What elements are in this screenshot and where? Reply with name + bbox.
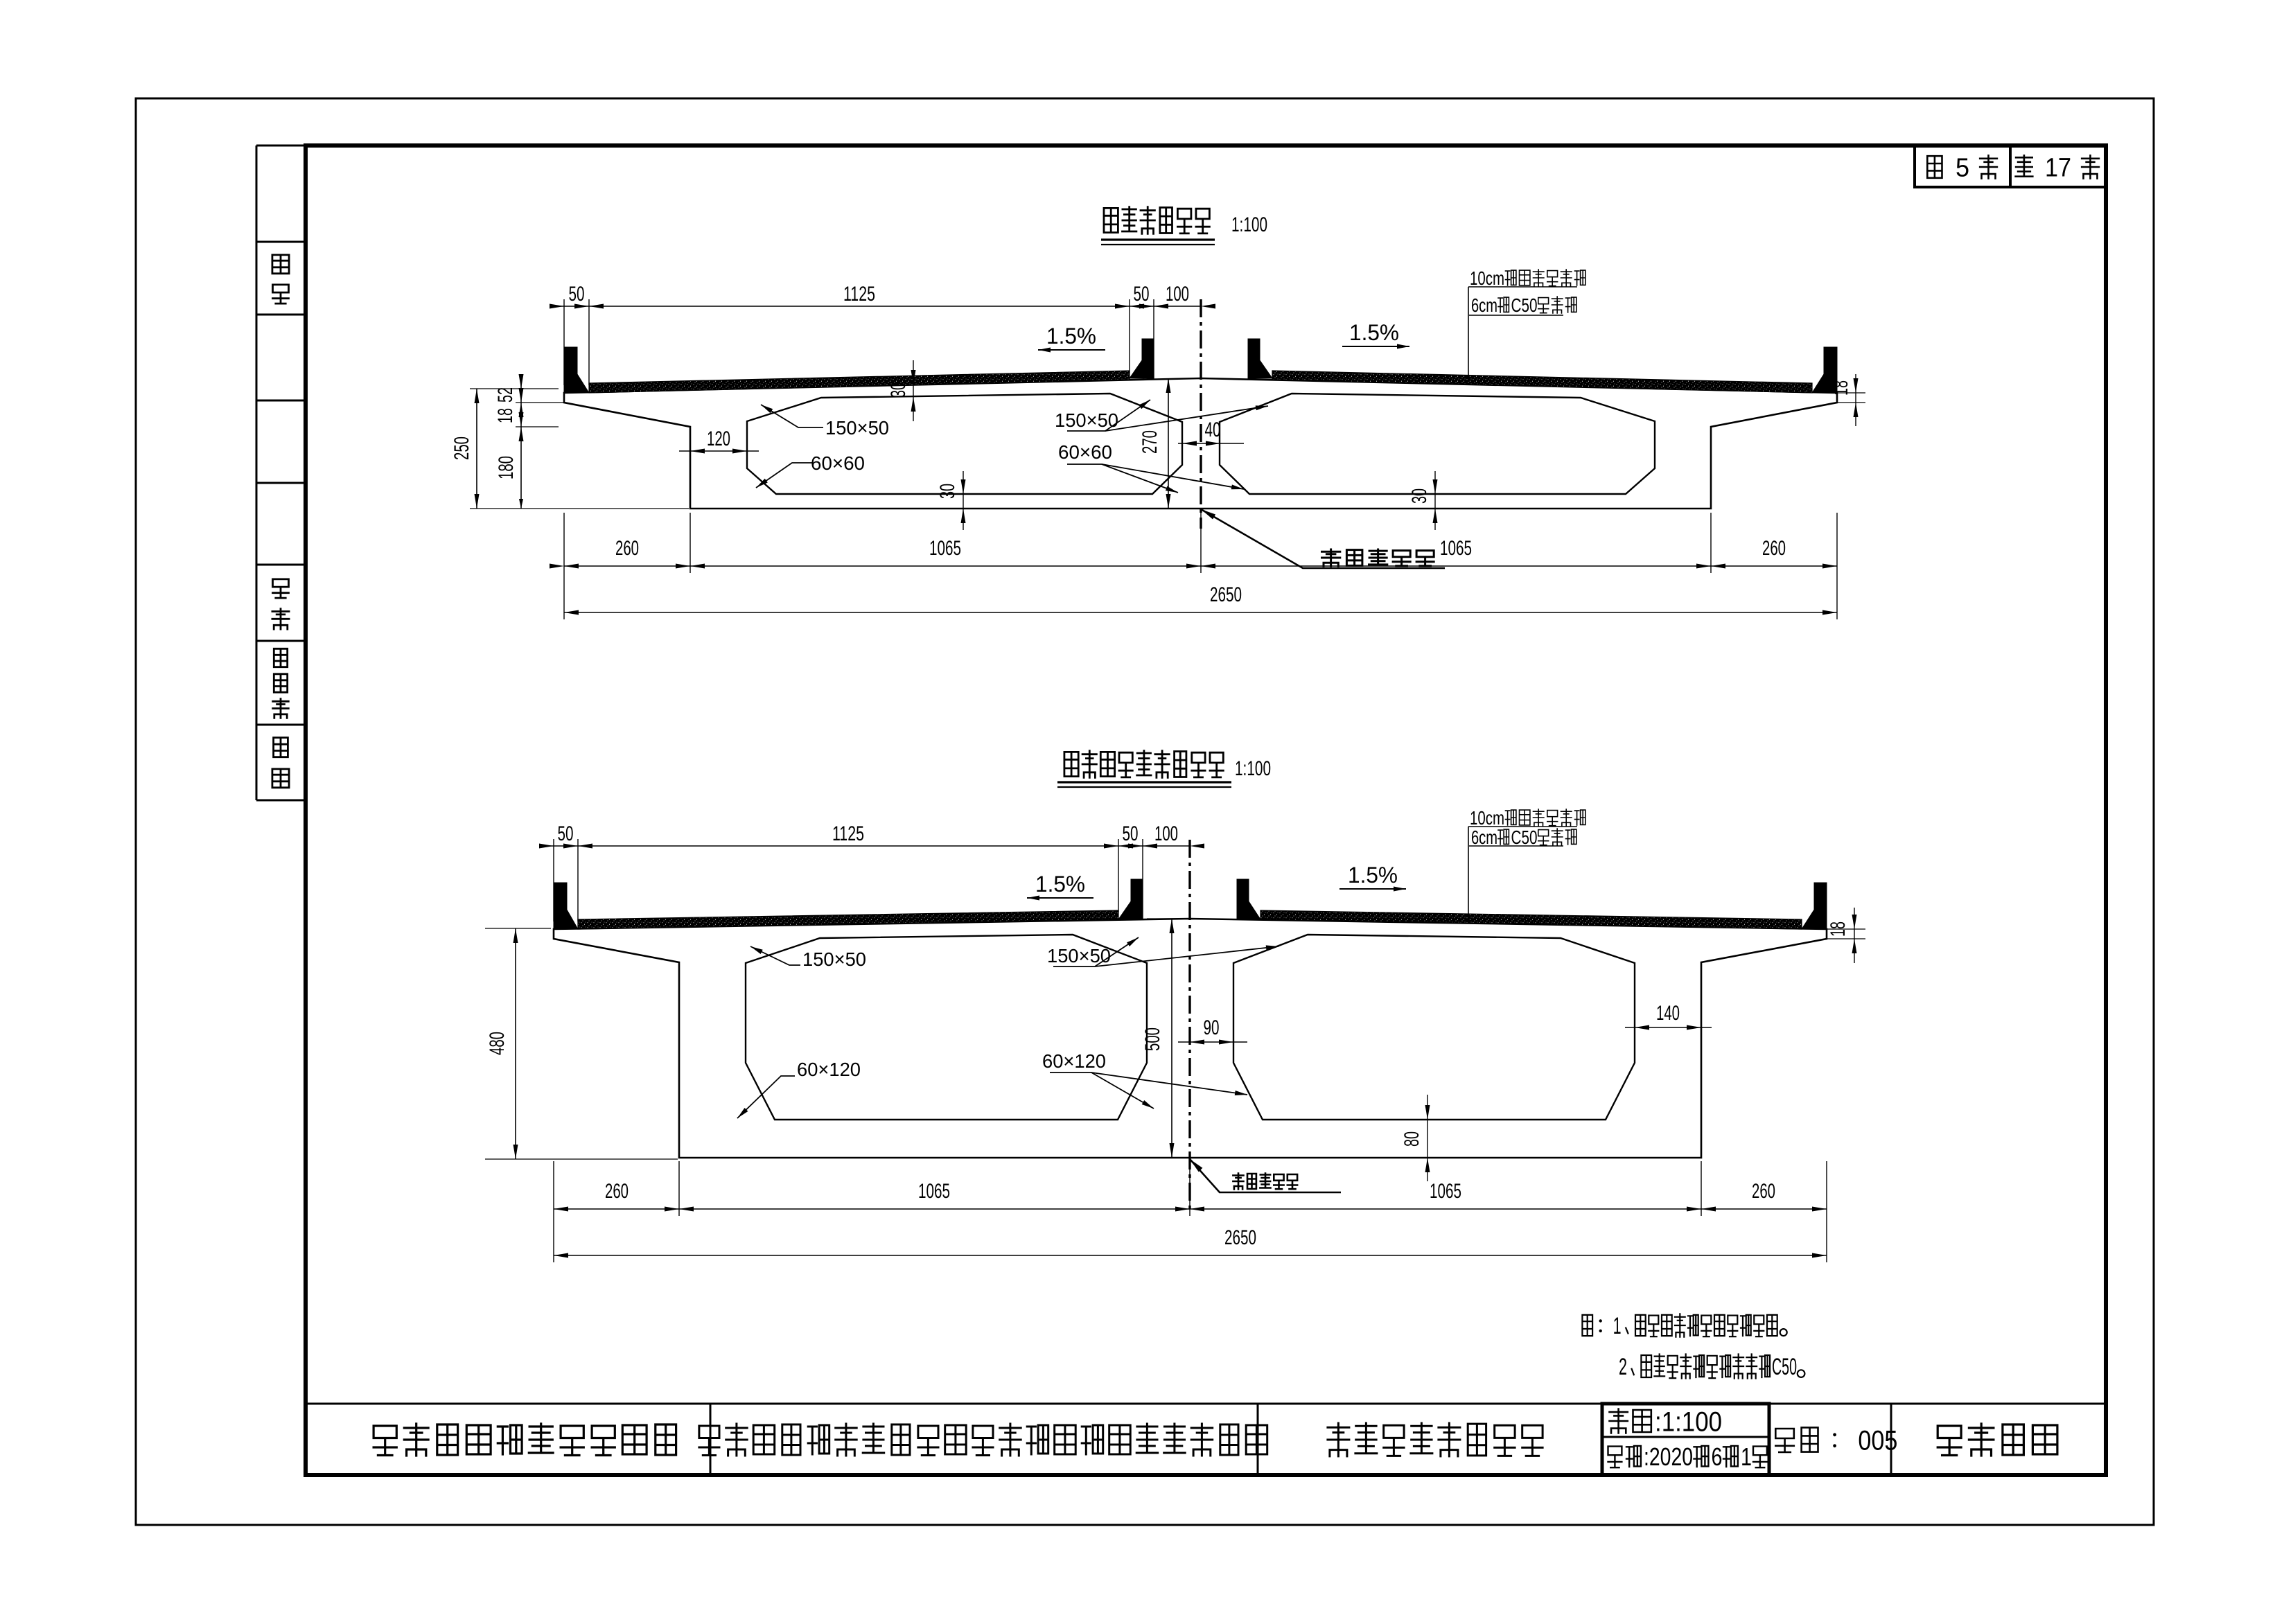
svg-text:2: 2 [1619, 1354, 1627, 1380]
svg-text:60×60: 60×60 [811, 452, 865, 474]
svg-text:480: 480 [486, 1032, 509, 1055]
svg-text:260: 260 [1762, 537, 1786, 560]
svg-text:50: 50 [569, 283, 585, 306]
svg-text:50: 50 [558, 822, 574, 845]
svg-text:17: 17 [2045, 154, 2071, 183]
svg-text:10cm: 10cm [1470, 267, 1504, 289]
svg-text:100: 100 [1166, 283, 1189, 306]
svg-text::2020: :2020 [1644, 1442, 1693, 1471]
svg-text:500: 500 [1141, 1027, 1164, 1051]
svg-text:90: 90 [1204, 1016, 1220, 1039]
svg-text:C50: C50 [1511, 827, 1538, 848]
svg-text:150×50: 150×50 [1047, 945, 1111, 967]
svg-text:1065: 1065 [1430, 1180, 1461, 1203]
svg-text:1.5%: 1.5% [1348, 863, 1398, 888]
svg-text:2650: 2650 [1210, 583, 1242, 606]
svg-text:1125: 1125 [832, 822, 864, 845]
svg-text:C50: C50 [1511, 294, 1538, 316]
svg-text:140: 140 [1656, 1002, 1680, 1025]
svg-text:150×50: 150×50 [825, 417, 889, 439]
svg-text:250: 250 [450, 436, 473, 460]
svg-text:40: 40 [1205, 418, 1221, 441]
svg-text:30: 30 [1408, 488, 1431, 504]
svg-text:005: 005 [1858, 1425, 1897, 1456]
svg-text:30: 30 [936, 484, 959, 499]
svg-text:1:100: 1:100 [1235, 757, 1271, 780]
svg-text:150×50: 150×50 [802, 948, 866, 970]
svg-text:C50: C50 [1772, 1354, 1797, 1380]
svg-text:260: 260 [1752, 1180, 1775, 1203]
svg-text:6: 6 [1712, 1442, 1723, 1471]
svg-text:52: 52 [494, 387, 517, 403]
svg-text:30: 30 [887, 382, 910, 398]
svg-text:50: 50 [1123, 822, 1139, 845]
svg-text:1.5%: 1.5% [1349, 320, 1399, 345]
svg-text:1065: 1065 [918, 1180, 950, 1203]
svg-text:60×120: 60×120 [797, 1059, 861, 1080]
svg-text:180: 180 [495, 456, 518, 479]
svg-text:18: 18 [1829, 380, 1852, 396]
svg-text:100: 100 [1154, 822, 1178, 845]
svg-text:1065: 1065 [1440, 537, 1472, 560]
svg-text:6cm: 6cm [1471, 294, 1497, 316]
svg-text:80: 80 [1400, 1131, 1423, 1147]
svg-text::1:100: :1:100 [1655, 1406, 1722, 1437]
svg-text:1.5%: 1.5% [1035, 872, 1085, 897]
svg-text:1065: 1065 [929, 537, 961, 560]
svg-text:1125: 1125 [843, 283, 875, 306]
svg-text:60×120: 60×120 [1042, 1050, 1106, 1072]
svg-text:1.5%: 1.5% [1046, 324, 1096, 348]
svg-text:1:100: 1:100 [1231, 213, 1267, 236]
svg-text:18: 18 [1827, 921, 1850, 937]
svg-text:60×60: 60×60 [1058, 441, 1112, 463]
svg-text:1: 1 [1741, 1442, 1752, 1471]
svg-text:260: 260 [615, 537, 639, 560]
svg-text:5: 5 [1956, 154, 1969, 183]
svg-text:1: 1 [1613, 1313, 1622, 1339]
svg-text:50: 50 [1134, 283, 1150, 306]
svg-text:10cm: 10cm [1470, 807, 1504, 829]
svg-text:270: 270 [1139, 430, 1161, 454]
svg-text:260: 260 [605, 1180, 629, 1203]
svg-text:6cm: 6cm [1471, 827, 1497, 848]
svg-text:2650: 2650 [1224, 1226, 1256, 1249]
svg-text:120: 120 [707, 427, 730, 450]
svg-text:18: 18 [494, 408, 517, 423]
